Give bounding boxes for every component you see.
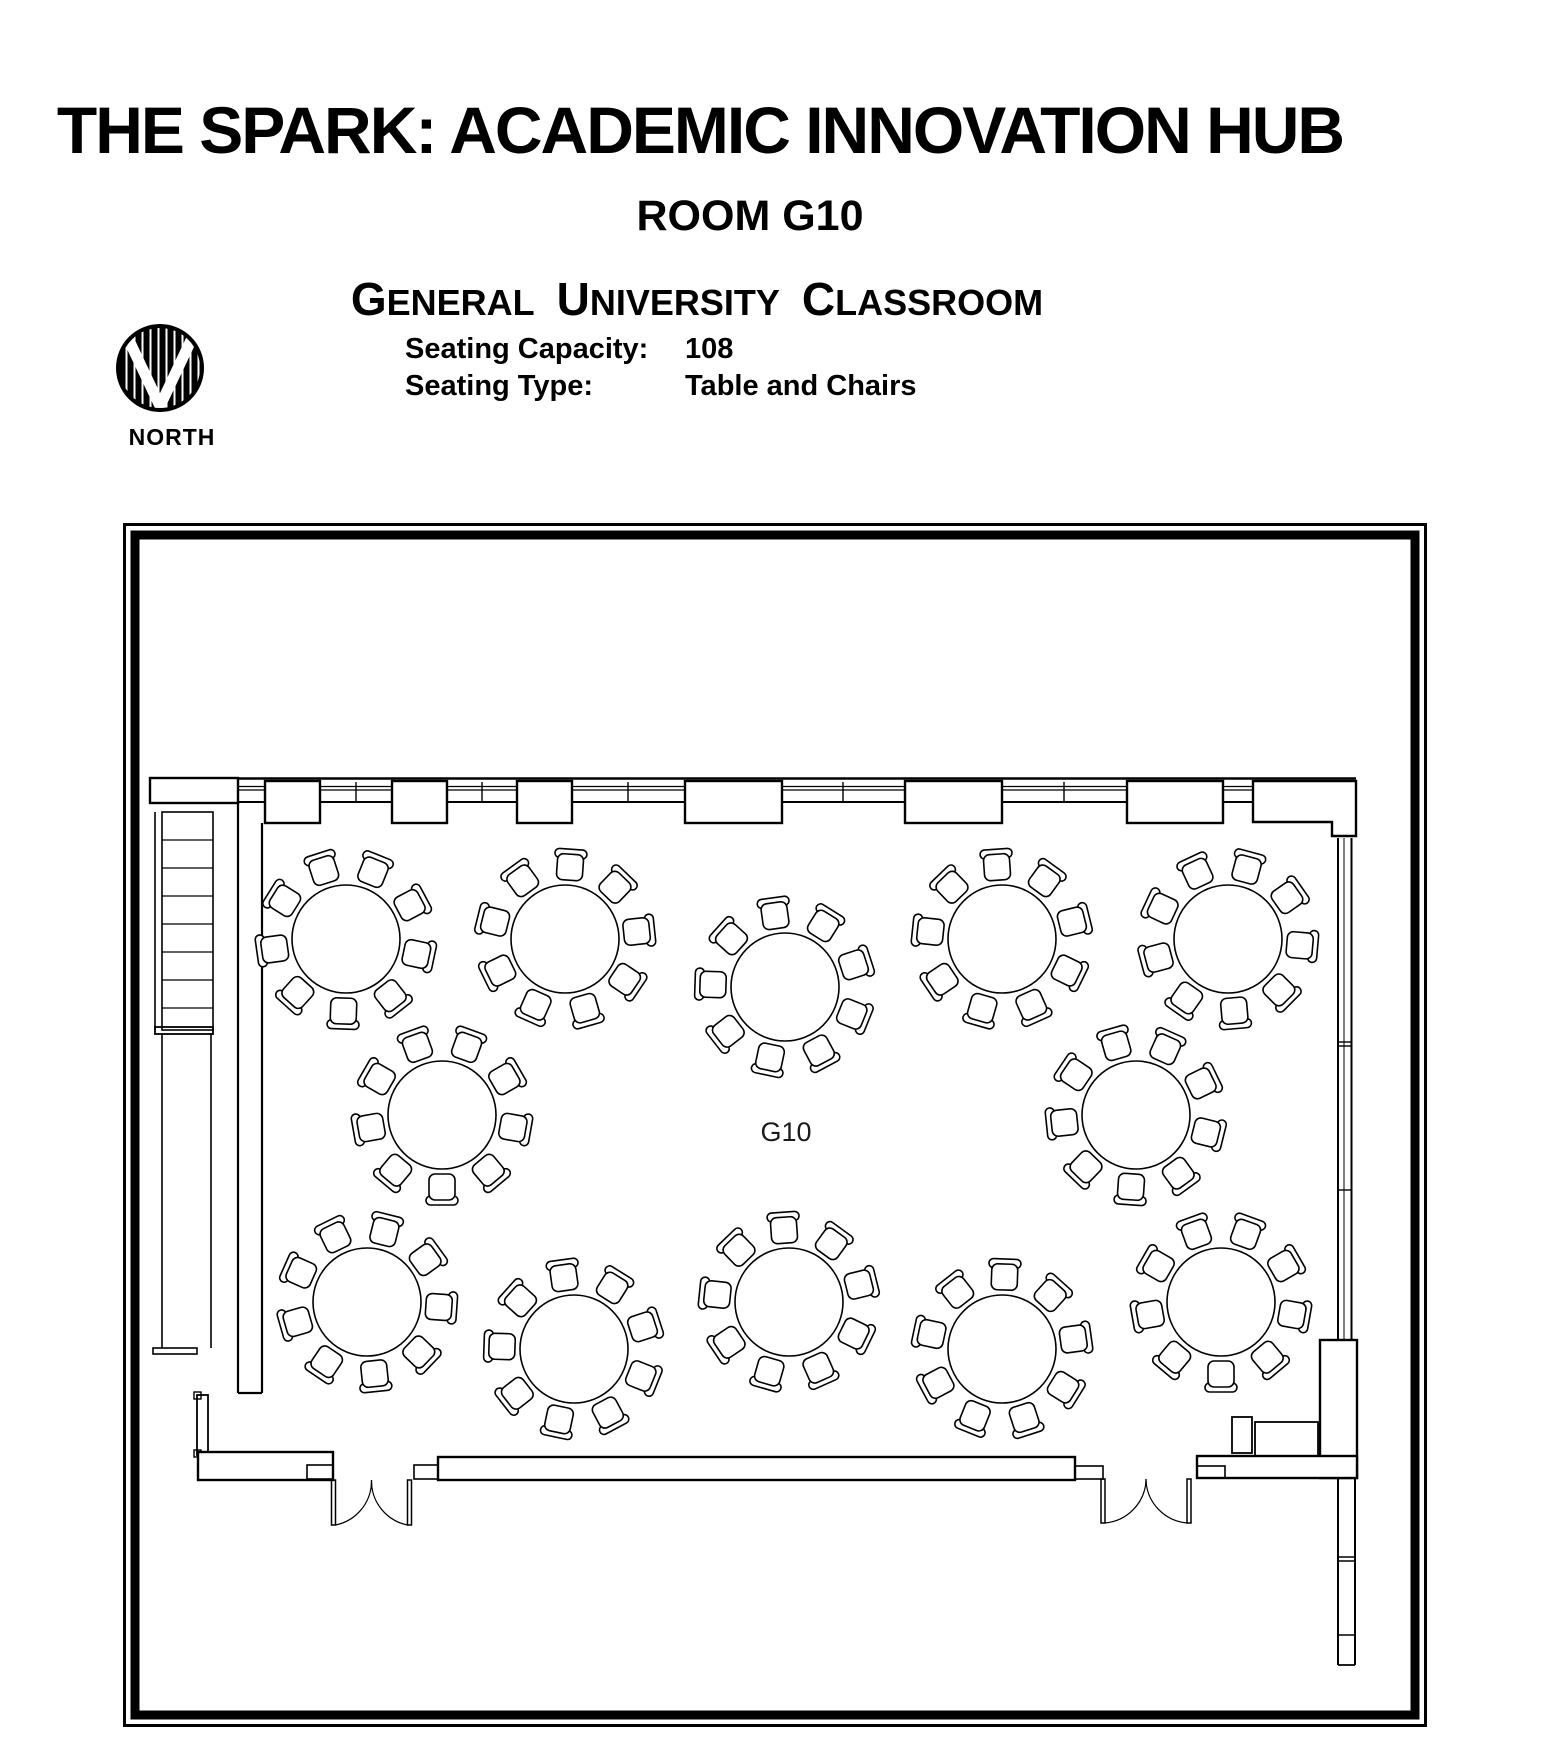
chair [426, 1174, 458, 1205]
chair [351, 1109, 387, 1146]
seating-info: Seating Capacity: 108 Seating Type: Tabl… [405, 331, 917, 405]
classroom-type-word: UNIVERSITY [557, 302, 780, 319]
chair [1058, 1321, 1093, 1357]
chair [357, 1359, 392, 1393]
west-door [194, 1392, 208, 1457]
chair [767, 1211, 801, 1244]
classroom-type-word: GENERAL [351, 302, 535, 319]
west-wall [194, 803, 262, 1457]
round-table-group [351, 1025, 534, 1205]
southeast-exterior-wall [1338, 1478, 1355, 1665]
seating-type-value: Table and Chairs [685, 368, 917, 405]
south-door-left [332, 1480, 412, 1525]
seating-type-label: Seating Type: [405, 368, 685, 405]
round-table [1167, 1248, 1275, 1356]
chair [836, 944, 875, 984]
round-table [388, 1061, 496, 1169]
chair [1140, 886, 1182, 928]
seating-capacity-label: Seating Capacity: [405, 331, 685, 368]
chair [694, 968, 726, 1001]
chair [625, 1306, 664, 1346]
chair [1096, 1024, 1135, 1063]
chair [1055, 902, 1093, 941]
chair [1228, 848, 1267, 886]
seating-capacity-value: 108 [685, 331, 733, 368]
chair [1205, 1361, 1237, 1392]
round-table-group [255, 848, 438, 1029]
chair [623, 1356, 664, 1397]
northeast-corner-pier [1253, 781, 1356, 836]
chair [566, 991, 605, 1030]
chair [1114, 1173, 1148, 1206]
chair [400, 936, 437, 974]
round-table [520, 1295, 628, 1403]
chair [698, 1277, 732, 1312]
round-table-group [1045, 1024, 1227, 1206]
classroom-type-word: CLASSROOM [802, 302, 1043, 319]
round-table [1174, 885, 1282, 993]
north-window-wall [150, 778, 1356, 836]
chair [483, 1330, 515, 1363]
chair [757, 896, 793, 931]
round-table-group [911, 1258, 1094, 1439]
chair [834, 994, 875, 1035]
chair [749, 1354, 788, 1393]
round-table [313, 1248, 421, 1356]
chair [497, 1109, 533, 1146]
chair [911, 1315, 948, 1353]
round-table [1082, 1061, 1190, 1169]
room-subtitle: ROOM G10 [0, 192, 1500, 241]
round-table-group [911, 848, 1093, 1030]
chair [276, 1303, 315, 1342]
chair [1011, 986, 1053, 1027]
chair [1276, 1296, 1312, 1333]
round-table [735, 1248, 843, 1356]
chair [622, 914, 656, 949]
seating-capacity-row: Seating Capacity: 108 [405, 331, 917, 368]
chair [962, 991, 1001, 1030]
chair [313, 1214, 355, 1256]
round-table-group [698, 1211, 880, 1393]
chair [911, 914, 945, 949]
chair [546, 1258, 582, 1293]
chair [798, 1349, 840, 1390]
east-window-wall [1320, 838, 1357, 1478]
chair [1175, 1212, 1216, 1252]
chair [425, 1290, 458, 1324]
round-table-group [1137, 848, 1319, 1030]
chair [1145, 1026, 1187, 1067]
chair [1226, 1212, 1267, 1252]
wall-counter [1255, 1422, 1318, 1456]
chair [303, 848, 343, 887]
round-table-group [474, 848, 656, 1030]
round-table-group [483, 1258, 664, 1441]
round-table [292, 885, 400, 993]
chair [751, 1041, 789, 1078]
north-wall-stub [150, 778, 238, 803]
north-label: NORTH [112, 424, 232, 451]
chair [278, 1251, 319, 1293]
round-table [948, 1295, 1056, 1403]
chair [447, 1025, 488, 1065]
chair [477, 951, 519, 993]
chair [474, 902, 512, 941]
round-table-group [1130, 1212, 1313, 1392]
floor-plan: G10 [123, 523, 1427, 1727]
chair [1130, 1296, 1166, 1333]
south-door-right [1101, 1479, 1191, 1523]
chair [1005, 1400, 1045, 1439]
round-table-group [276, 1211, 458, 1393]
chair [1175, 851, 1217, 893]
chair [540, 1403, 578, 1440]
north-arrow-icon [112, 318, 208, 418]
seating-type-row: Seating Type: Table and Chairs [405, 368, 917, 405]
chair [353, 850, 394, 891]
chair [953, 1398, 994, 1439]
floor-plan-drawing: G10 [123, 523, 1427, 1727]
chair [1048, 951, 1090, 993]
round-table [511, 885, 619, 993]
stairwell [153, 812, 213, 1354]
chair [255, 931, 290, 967]
chair [396, 1025, 437, 1065]
chair [1217, 996, 1252, 1030]
chair [842, 1265, 880, 1304]
round-table [948, 885, 1056, 993]
round-table-group [694, 896, 875, 1079]
chair [988, 1258, 1021, 1290]
page-title: THE SPARK: ACADEMIC INNOVATION HUB [0, 92, 1400, 168]
chair [1189, 1114, 1227, 1153]
chair [1182, 1061, 1224, 1103]
north-indicator: NORTH [112, 318, 232, 451]
round-table [731, 933, 839, 1041]
chair [514, 986, 556, 1027]
chair [980, 848, 1014, 881]
chair [1137, 939, 1175, 978]
chair [553, 848, 587, 881]
room-number-label: G10 [760, 1117, 811, 1147]
chair [366, 1211, 405, 1249]
south-wall [198, 1417, 1357, 1525]
chair [327, 997, 360, 1029]
chair [1285, 928, 1319, 963]
chair [835, 1314, 877, 1356]
chair [1045, 1105, 1079, 1140]
podium [1232, 1417, 1252, 1453]
corridor-connector [153, 1348, 197, 1354]
